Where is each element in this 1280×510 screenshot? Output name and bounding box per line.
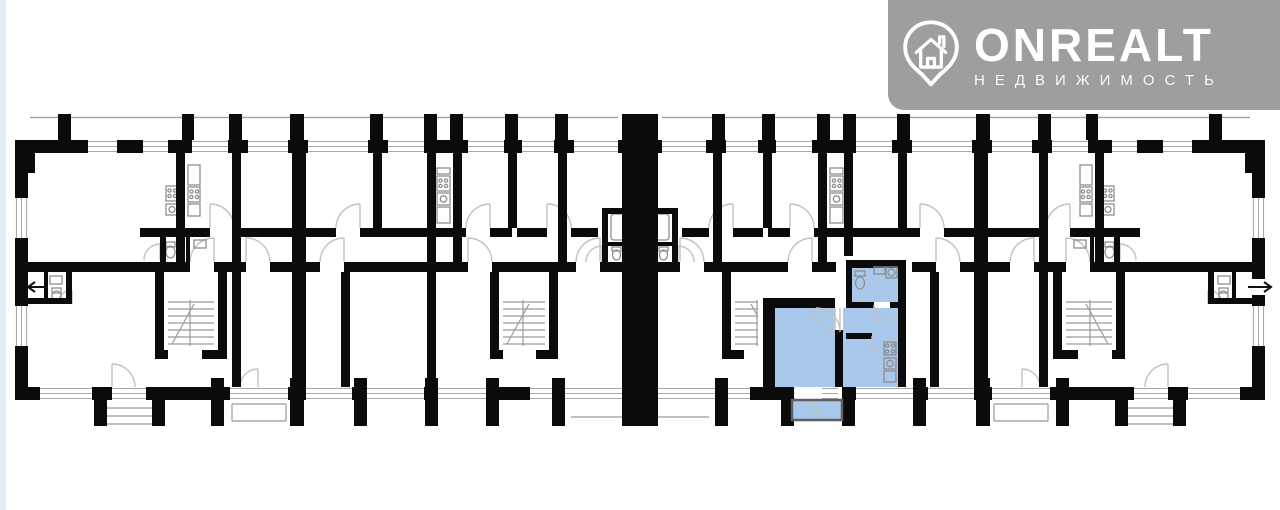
floor-plan-page: ONREALT НЕДВИЖИМОСТЬ — [0, 0, 1280, 510]
location-pin-house-icon — [900, 17, 962, 93]
mirrored-right-half — [640, 114, 1265, 426]
left-half-plan — [15, 114, 640, 426]
brand-tagline: НЕДВИЖИМОСТЬ — [974, 72, 1224, 89]
brand-name: ONREALT — [974, 22, 1224, 68]
walls-layer — [15, 114, 640, 426]
watermark-text: ONREALT НЕДВИЖИМОСТЬ — [974, 22, 1224, 89]
onrealt-watermark: ONREALT НЕДВИЖИМОСТЬ — [888, 0, 1280, 110]
